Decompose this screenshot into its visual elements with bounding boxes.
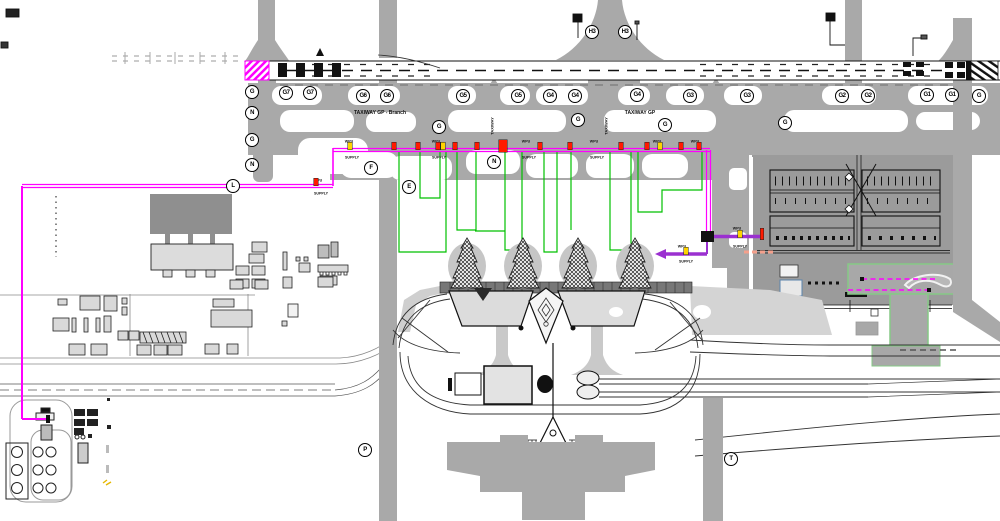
- road-network: [0, 294, 394, 396]
- cargo-terminal: [56, 194, 233, 277]
- route-arrow-icon: [655, 249, 666, 259]
- route-marker: [697, 143, 701, 150]
- route-marker: [645, 143, 649, 150]
- taxiway-label: G5: [511, 89, 525, 103]
- route-node: [701, 231, 714, 242]
- taxiway-label: G6: [356, 89, 370, 103]
- text-label: SUPPLY: [522, 155, 536, 160]
- taxiway-label: G: [658, 118, 672, 132]
- route-marker: [436, 143, 440, 150]
- taxiway-label: G4: [543, 89, 557, 103]
- taxiway-label: H3: [618, 25, 632, 39]
- text-label: WPU: [590, 139, 598, 144]
- route-marker: [568, 143, 572, 150]
- taxiway-label: G7: [303, 86, 317, 100]
- route-marker: [738, 231, 742, 238]
- text-label: SUPPLY: [590, 155, 604, 160]
- taxiway-label: G: [432, 120, 446, 134]
- taxiway-label: G: [972, 89, 986, 103]
- text-label: SUPPLY: [679, 259, 693, 264]
- signposts: [1, 9, 927, 56]
- yellow-mark: [103, 480, 111, 485]
- taxiway-label: G7: [279, 86, 293, 100]
- text-label: TAXIWAY: [604, 117, 609, 135]
- route-marker: [679, 143, 683, 150]
- route-marker: [392, 143, 396, 150]
- text-label: SUPPLY: [314, 191, 328, 196]
- taxiway-label: G: [245, 85, 259, 99]
- taxiway-label: G4: [630, 88, 644, 102]
- taxiway-label: F: [364, 161, 378, 175]
- text-label: WPU: [522, 139, 530, 144]
- text-label: TAXIWAY GP: [625, 110, 655, 116]
- text-label: TAXIWAY: [490, 117, 495, 135]
- route-marker: [684, 248, 688, 255]
- approach-lights: [112, 52, 244, 64]
- route-marker: [761, 229, 764, 240]
- north-arrow-icon: [316, 48, 324, 56]
- chevron-hatch: [971, 61, 998, 80]
- text-label: TAXIWAY GP - Branch: [354, 110, 406, 116]
- runway: [112, 48, 1000, 80]
- route-marker: [348, 143, 352, 150]
- route-marker: [538, 143, 542, 150]
- route-marker: [475, 143, 479, 150]
- taxiway-label: N: [487, 155, 501, 169]
- taxiway-label: G3: [740, 89, 754, 103]
- taxiway-label: G: [571, 113, 585, 127]
- taxiway-label: P: [358, 443, 372, 457]
- route-marker: [314, 179, 318, 186]
- taxiway-label: G1: [945, 88, 959, 102]
- taxiway-label: G: [778, 116, 792, 130]
- plan-linework: [0, 0, 1000, 521]
- parking-and-station: [448, 343, 599, 449]
- text-label: SUPPLY: [432, 155, 446, 160]
- interchange: [447, 398, 723, 521]
- displaced-threshold-hatch: [245, 61, 269, 80]
- taxiway-label: G2: [835, 89, 849, 103]
- route-marker: [441, 143, 445, 150]
- taxiway-label: T: [724, 452, 738, 466]
- taxiway-label: L: [226, 179, 240, 193]
- taxiway-label: G4: [568, 89, 582, 103]
- route-marker: [619, 143, 623, 150]
- route-marker: [416, 143, 420, 150]
- airport-site-plan: GNGNG7G7G6G6G5G5G4G4G4G3G3G2G2G1G1GH3H3G…: [0, 0, 1000, 521]
- railway: [0, 368, 385, 396]
- taxiway-label: G1: [920, 88, 934, 102]
- taxiway-label: N: [245, 106, 259, 120]
- taxiway-label: G5: [456, 89, 470, 103]
- route-marker: [658, 143, 662, 150]
- text-label: SUPPLY: [733, 244, 747, 249]
- taxiway-label: N: [245, 158, 259, 172]
- text-label: SUPPLY: [345, 155, 359, 160]
- taxiway-label: G3: [683, 89, 697, 103]
- taxiway-label: G6: [380, 89, 394, 103]
- taxiway-label: E: [402, 180, 416, 194]
- taxiway-label: G: [245, 133, 259, 147]
- taxiway-label: G2: [861, 89, 875, 103]
- route-marker: [499, 140, 507, 152]
- route-marker: [453, 143, 457, 150]
- taxiway-label: H3: [585, 25, 599, 39]
